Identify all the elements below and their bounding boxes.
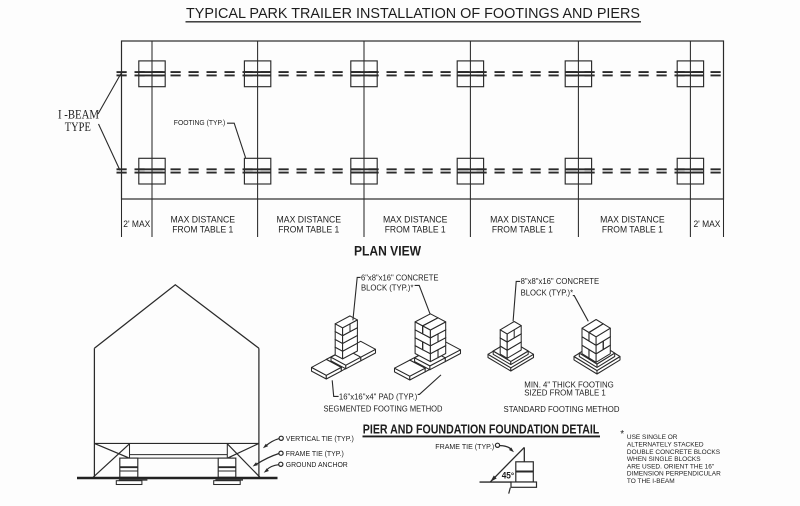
svg-text:2' MAX: 2' MAX (123, 219, 150, 229)
svg-text:FRAME TIE (TYP.): FRAME TIE (TYP.) (286, 451, 344, 458)
svg-text:MAX DISTANCE: MAX DISTANCE (171, 215, 236, 225)
svg-text:BLOCK (TYP.)*: BLOCK (TYP.)* (361, 283, 414, 292)
svg-text:ARE USED. ORIENT THE 16": ARE USED. ORIENT THE 16" (627, 463, 715, 470)
svg-text:FROM TABLE 1: FROM TABLE 1 (385, 224, 446, 234)
svg-text:FROM TABLE 1: FROM TABLE 1 (492, 224, 553, 234)
svg-text:​FOOTING (TYP.): ​FOOTING (TYP.) (174, 118, 226, 127)
svg-text:STANDARD FOOTING METHOD: STANDARD FOOTING METHOD (504, 404, 620, 414)
svg-text:DIMENSION PERPENDICULAR: DIMENSION PERPENDICULAR (627, 471, 721, 478)
svg-text:TYPE: TYPE (65, 120, 91, 134)
svg-text:TYPICAL PARK TRAILER INSTALLAT: TYPICAL PARK TRAILER INSTALLATION OF FOO… (186, 6, 640, 22)
svg-text:SEGMENTED FOOTING METHOD: SEGMENTED FOOTING METHOD (324, 403, 443, 413)
svg-text:TO THE I-BEAM: TO THE I-BEAM (627, 478, 675, 485)
svg-text:MAX DISTANCE: MAX DISTANCE (277, 215, 342, 225)
svg-text:GROUND ANCHOR: GROUND ANCHOR (286, 462, 348, 469)
svg-text:2' MAX: 2' MAX (693, 219, 720, 229)
svg-text:45°: 45° (502, 470, 515, 481)
svg-text:FROM TABLE 1: FROM TABLE 1 (172, 224, 233, 234)
svg-text:SIZED FROM TABLE 1: SIZED FROM TABLE 1 (524, 389, 606, 398)
svg-text:MAX DISTANCE: MAX DISTANCE (600, 215, 665, 225)
svg-text:PLAN VIEW: PLAN VIEW (354, 244, 421, 259)
svg-text:USE SINGLE OR: USE SINGLE OR (627, 434, 678, 441)
svg-text:MAX DISTANCE: MAX DISTANCE (383, 215, 448, 225)
svg-text:ALTERNATELY STACKED: ALTERNATELY STACKED (627, 442, 704, 449)
svg-text:VERTICAL TIE (TYP.): VERTICAL TIE (TYP.) (286, 436, 354, 443)
svg-text:6"x8"x16" CONCRETE: 6"x8"x16" CONCRETE (361, 273, 439, 282)
svg-text:8"x8"x16" CONCRETE: 8"x8"x16" CONCRETE (521, 277, 600, 286)
svg-text:WHEN SINGLE BLOCKS: WHEN SINGLE BLOCKS (627, 456, 701, 463)
svg-text:FROM TABLE 1: FROM TABLE 1 (278, 224, 339, 234)
svg-text:DOUBLE CONCRETE BLOCKS: DOUBLE CONCRETE BLOCKS (627, 449, 721, 456)
svg-text:16"x16"x4" PAD (TYP.): 16"x16"x4" PAD (TYP.) (339, 392, 418, 401)
svg-text:FRAME TIE (TYP.): FRAME TIE (TYP.) (435, 442, 494, 451)
svg-text:PIER AND FOUNDATION FOUNDATION: PIER AND FOUNDATION FOUNDATION DETAIL (363, 422, 600, 437)
svg-text:FROM TABLE 1: FROM TABLE 1 (602, 224, 663, 234)
svg-text:MAX DISTANCE: MAX DISTANCE (490, 215, 555, 225)
svg-text:BLOCK (TYP.)*: BLOCK (TYP.)* (521, 288, 574, 297)
svg-text:*: * (620, 429, 624, 440)
